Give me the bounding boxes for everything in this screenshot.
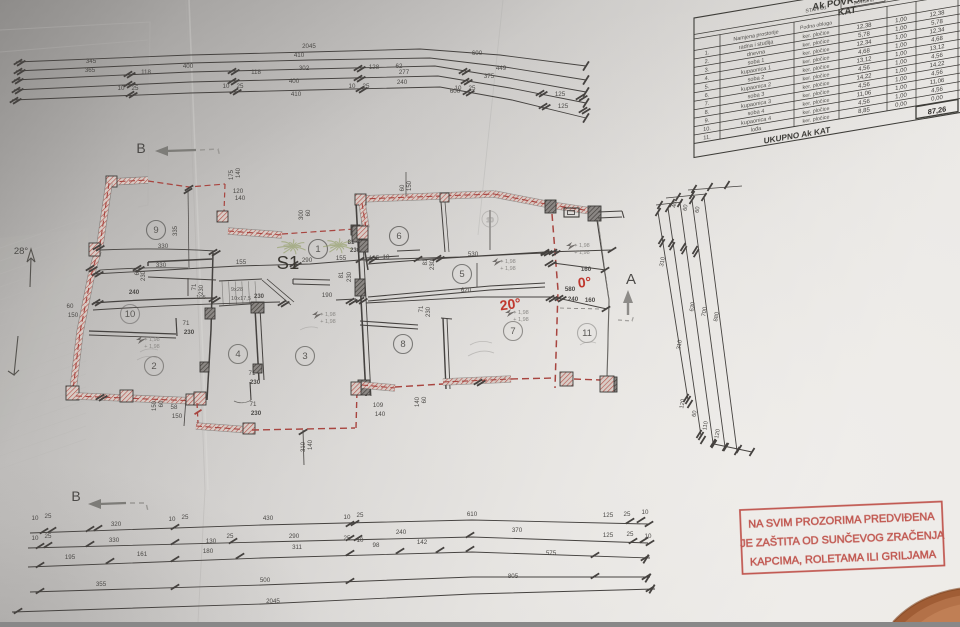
svg-text:277: 277 xyxy=(399,69,410,76)
svg-text:365: 365 xyxy=(85,67,96,74)
svg-text:600: 600 xyxy=(472,50,483,57)
svg-text:10: 10 xyxy=(455,85,462,92)
svg-text:25: 25 xyxy=(182,514,189,521)
svg-text:140: 140 xyxy=(415,396,421,407)
svg-text:7.: 7. xyxy=(705,101,710,108)
svg-text:10: 10 xyxy=(645,533,652,540)
svg-text:610: 610 xyxy=(467,511,478,518)
svg-text:25: 25 xyxy=(132,85,139,92)
svg-text:400: 400 xyxy=(289,78,300,85)
svg-text:10: 10 xyxy=(486,217,494,224)
svg-text:575: 575 xyxy=(546,550,557,557)
svg-text:230: 230 xyxy=(250,379,261,386)
svg-text:400: 400 xyxy=(183,63,194,70)
svg-text:81: 81 xyxy=(348,240,355,246)
svg-text:25: 25 xyxy=(363,83,370,90)
svg-text:71: 71 xyxy=(183,320,190,327)
svg-text:150: 150 xyxy=(407,180,413,191)
svg-text:310: 310 xyxy=(301,441,307,452)
svg-text:+ 1,98: + 1,98 xyxy=(500,259,515,265)
svg-text:150: 150 xyxy=(68,312,79,319)
svg-text:410: 410 xyxy=(291,91,302,98)
svg-text:2045: 2045 xyxy=(266,598,280,605)
svg-text:140: 140 xyxy=(235,195,246,202)
svg-text:10: 10 xyxy=(169,516,176,523)
svg-text:60: 60 xyxy=(400,184,406,191)
svg-text:160: 160 xyxy=(581,266,592,273)
svg-text:10: 10 xyxy=(223,83,230,90)
svg-text:128: 128 xyxy=(369,64,380,71)
svg-text:25: 25 xyxy=(357,512,364,519)
svg-text:190: 190 xyxy=(322,292,333,299)
svg-text:6.: 6. xyxy=(705,92,710,99)
svg-text:25: 25 xyxy=(624,511,631,518)
svg-text:28°: 28° xyxy=(14,246,29,257)
svg-text:195: 195 xyxy=(65,554,76,561)
svg-text:300: 300 xyxy=(299,209,305,220)
svg-text:375: 375 xyxy=(484,73,495,80)
svg-text:58: 58 xyxy=(171,404,178,411)
svg-text:355: 355 xyxy=(96,581,107,588)
svg-text:6: 6 xyxy=(396,231,401,242)
svg-text:9x28: 9x28 xyxy=(231,287,243,293)
svg-text:230: 230 xyxy=(430,259,436,270)
svg-text:8: 8 xyxy=(400,339,405,350)
svg-text:+ 1,98: + 1,98 xyxy=(144,344,159,350)
svg-text:330: 330 xyxy=(156,262,167,269)
svg-text:S1: S1 xyxy=(277,252,300,273)
svg-text:2.: 2. xyxy=(705,59,710,66)
svg-text:3: 3 xyxy=(302,351,307,362)
svg-text:1: 1 xyxy=(315,244,320,255)
svg-text:118: 118 xyxy=(141,69,151,76)
svg-text:125: 125 xyxy=(603,512,614,519)
svg-text:311: 311 xyxy=(292,544,302,551)
svg-text:+ 1,98: + 1,98 xyxy=(574,243,589,249)
svg-text:+ 1,98: + 1,98 xyxy=(574,250,589,256)
svg-text:25: 25 xyxy=(627,531,634,538)
svg-text:155: 155 xyxy=(336,255,347,262)
svg-text:8.: 8. xyxy=(705,109,710,116)
svg-text:81: 81 xyxy=(339,271,345,278)
svg-text:10: 10 xyxy=(118,85,125,92)
svg-text:3.: 3. xyxy=(705,67,710,74)
svg-text:4: 4 xyxy=(235,349,240,360)
svg-text:230: 230 xyxy=(347,271,353,282)
svg-text:B: B xyxy=(71,488,80,504)
svg-text:150: 150 xyxy=(172,413,183,420)
svg-text:140: 140 xyxy=(375,411,386,418)
svg-text:10: 10 xyxy=(642,509,649,516)
svg-text:5: 5 xyxy=(459,269,464,280)
svg-text:60: 60 xyxy=(683,204,690,211)
svg-text:335: 335 xyxy=(173,225,179,236)
svg-text:150: 150 xyxy=(152,400,158,411)
svg-text:118: 118 xyxy=(251,69,261,76)
svg-text:240: 240 xyxy=(568,296,579,303)
svg-text:10: 10 xyxy=(125,309,136,320)
svg-text:290: 290 xyxy=(289,533,300,540)
svg-text:81: 81 xyxy=(423,258,429,265)
svg-text:120: 120 xyxy=(233,188,244,195)
svg-text:105: 105 xyxy=(369,255,380,262)
svg-text:7: 7 xyxy=(510,326,515,337)
svg-text:230: 230 xyxy=(141,270,147,281)
svg-text:140: 140 xyxy=(236,167,242,178)
svg-text:125: 125 xyxy=(558,103,569,110)
svg-text:+ 1,98: + 1,98 xyxy=(513,317,528,323)
svg-text:580: 580 xyxy=(565,286,576,293)
svg-text:+ 1,98: + 1,98 xyxy=(513,310,528,316)
svg-text:0°: 0° xyxy=(577,273,592,290)
svg-text:10: 10 xyxy=(32,535,39,542)
svg-text:10x17,5: 10x17,5 xyxy=(231,296,251,302)
svg-text:109: 109 xyxy=(373,402,384,409)
svg-text:410: 410 xyxy=(294,52,305,59)
svg-text:530: 530 xyxy=(468,251,479,258)
svg-text:5.: 5. xyxy=(705,84,710,91)
svg-text:240: 240 xyxy=(397,79,408,86)
svg-text:302: 302 xyxy=(299,65,310,72)
svg-text:805: 805 xyxy=(508,573,519,580)
svg-text:60: 60 xyxy=(422,396,428,403)
svg-text:142: 142 xyxy=(417,539,428,546)
svg-text:71: 71 xyxy=(192,283,198,290)
svg-text:125: 125 xyxy=(603,532,614,539)
svg-text:25: 25 xyxy=(237,83,244,90)
svg-text:330: 330 xyxy=(109,537,120,544)
svg-text:9.: 9. xyxy=(705,118,710,125)
svg-text:25: 25 xyxy=(344,535,351,542)
svg-text:175: 175 xyxy=(229,169,235,180)
svg-text:500: 500 xyxy=(260,577,271,584)
svg-text:B: B xyxy=(136,140,145,156)
svg-text:25: 25 xyxy=(45,533,52,540)
svg-text:60: 60 xyxy=(695,206,702,213)
svg-text:71: 71 xyxy=(249,370,256,377)
svg-text:71: 71 xyxy=(250,401,257,408)
svg-text:+ 1,98: + 1,98 xyxy=(320,312,335,318)
svg-text:230: 230 xyxy=(184,329,195,336)
svg-text:A: A xyxy=(626,271,636,288)
svg-text:40: 40 xyxy=(672,201,679,208)
svg-text:60: 60 xyxy=(159,400,165,407)
svg-text:155: 155 xyxy=(236,259,247,266)
svg-text:2045: 2045 xyxy=(302,43,316,50)
svg-text:10: 10 xyxy=(349,83,356,90)
svg-text:620: 620 xyxy=(461,287,472,294)
svg-text:+ 1,98: + 1,98 xyxy=(144,337,159,343)
svg-text:10: 10 xyxy=(357,537,364,544)
svg-text:10: 10 xyxy=(383,254,390,261)
svg-text:60: 60 xyxy=(67,303,74,310)
svg-text:230: 230 xyxy=(426,306,432,317)
svg-text:180: 180 xyxy=(203,548,214,555)
svg-text:230: 230 xyxy=(199,284,205,295)
svg-text:25: 25 xyxy=(45,513,52,520)
svg-text:240: 240 xyxy=(129,289,140,296)
svg-text:10: 10 xyxy=(32,515,39,522)
svg-text:230: 230 xyxy=(254,294,265,300)
svg-text:161: 161 xyxy=(137,551,148,558)
svg-text:2: 2 xyxy=(151,361,156,372)
svg-text:10: 10 xyxy=(344,514,351,521)
svg-text:9: 9 xyxy=(153,225,158,236)
svg-text:230: 230 xyxy=(251,410,262,417)
svg-text:25: 25 xyxy=(227,533,234,540)
svg-text:330: 330 xyxy=(158,243,169,250)
svg-text:370: 370 xyxy=(512,527,523,534)
svg-text:25: 25 xyxy=(469,85,476,92)
svg-text:1.: 1. xyxy=(705,50,710,57)
svg-text:449: 449 xyxy=(496,65,507,72)
svg-text:160: 160 xyxy=(585,297,596,304)
svg-text:130: 130 xyxy=(206,538,217,545)
svg-text:60: 60 xyxy=(692,410,699,417)
svg-text:320: 320 xyxy=(111,521,122,528)
svg-text:140: 140 xyxy=(308,439,314,450)
svg-text:4.: 4. xyxy=(705,75,710,82)
svg-text:345: 345 xyxy=(86,58,97,65)
svg-text:60: 60 xyxy=(306,209,312,216)
svg-text:125: 125 xyxy=(555,91,566,98)
svg-text:71: 71 xyxy=(419,305,425,312)
svg-text:240: 240 xyxy=(396,529,407,536)
svg-text:290: 290 xyxy=(302,257,313,264)
svg-text:98: 98 xyxy=(373,542,380,549)
svg-text:430: 430 xyxy=(263,515,274,522)
svg-text:11: 11 xyxy=(582,328,592,339)
svg-text:+ 1,98: + 1,98 xyxy=(500,266,515,272)
svg-text:+ 1,98: + 1,98 xyxy=(320,319,335,325)
